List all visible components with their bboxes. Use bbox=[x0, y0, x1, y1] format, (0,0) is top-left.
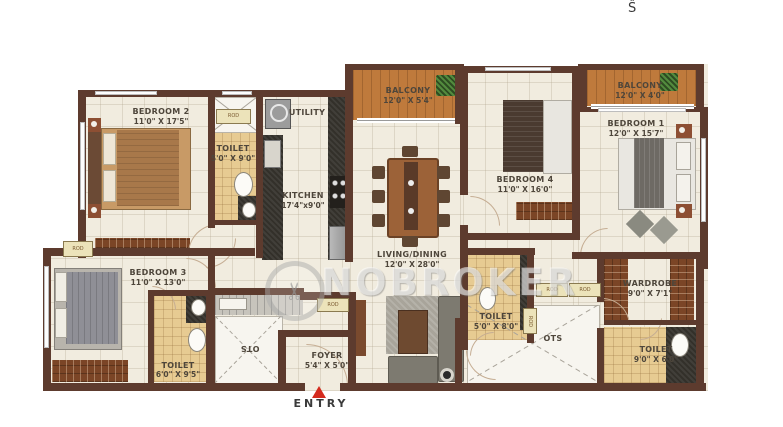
wardrobe-dims: 9'0" X 7'1" bbox=[628, 290, 672, 298]
toilet-center-label: TOILET bbox=[479, 313, 512, 321]
window bbox=[95, 91, 157, 95]
balcony-center-railing bbox=[357, 118, 455, 123]
wall bbox=[696, 64, 704, 112]
pillow bbox=[55, 272, 67, 302]
wall bbox=[460, 73, 468, 195]
bedroom3-label: BEDROOM 3 bbox=[130, 269, 187, 277]
toilet2-label: TOILET bbox=[216, 145, 249, 153]
rod-label: ROD bbox=[527, 315, 532, 326]
bed2-headboard bbox=[88, 122, 101, 214]
kitchen-sink bbox=[264, 140, 281, 168]
pillow bbox=[676, 174, 691, 202]
toilet-center-dims: 5'0" X 8'0" bbox=[474, 323, 518, 331]
bed1-blanket bbox=[634, 138, 664, 208]
bed2-blanket bbox=[117, 130, 179, 206]
wall bbox=[148, 290, 154, 385]
nightstand bbox=[676, 124, 692, 138]
wall bbox=[597, 328, 604, 388]
balcony-right-dims: 12'0" X 4'0" bbox=[615, 92, 665, 100]
chair bbox=[437, 190, 450, 203]
wall bbox=[206, 290, 212, 385]
wardrobe-label: WARDROBE bbox=[623, 280, 677, 288]
bedroom2-label: BEDROOM 2 bbox=[133, 108, 190, 116]
bed3-blanket bbox=[66, 272, 118, 344]
wall bbox=[148, 290, 212, 296]
wardrobe-strip bbox=[516, 202, 572, 220]
window bbox=[80, 122, 85, 210]
wall bbox=[348, 292, 356, 387]
coffee-table bbox=[398, 310, 428, 354]
sofa bbox=[388, 356, 438, 384]
window bbox=[222, 91, 252, 95]
chair bbox=[402, 146, 418, 157]
chair bbox=[372, 214, 385, 227]
window bbox=[485, 67, 551, 71]
rod-marker: ROD bbox=[216, 109, 251, 124]
wall bbox=[455, 318, 462, 386]
wardrobe-strip bbox=[52, 360, 128, 382]
entry-label: ENTRY bbox=[293, 397, 348, 410]
wardrobe-strip bbox=[670, 258, 694, 322]
toilet3-dims: 6'0" X 9'5" bbox=[156, 371, 200, 379]
rod-label: ROD bbox=[72, 247, 83, 252]
foyer-dims: 5'4" X 5'0" bbox=[305, 362, 349, 370]
toilet-icon bbox=[671, 333, 689, 357]
nobroker-logo-icon: ✂ bbox=[265, 261, 325, 321]
compass-north-icon: Ŝ bbox=[628, 1, 636, 16]
bedroom3-dims: 11'0" X 13'0" bbox=[131, 279, 186, 287]
foyer-label: FOYER bbox=[312, 352, 343, 360]
wall bbox=[460, 233, 580, 240]
chair bbox=[372, 190, 385, 203]
toilet-icon bbox=[234, 172, 253, 197]
bedroom4-dims: 11'0" X 16'0" bbox=[498, 186, 553, 194]
window bbox=[701, 138, 706, 222]
bedroom1-label: BEDROOM 1 bbox=[608, 120, 665, 128]
living-label: LIVING/DINING bbox=[377, 251, 447, 259]
floor-plan: ROD ROD ROD ROD ROD ROD BEDROOM 2 11'0" … bbox=[0, 0, 783, 427]
wall bbox=[578, 64, 704, 70]
chair bbox=[372, 166, 385, 179]
wall bbox=[460, 248, 535, 255]
chair bbox=[437, 166, 450, 179]
wall bbox=[256, 95, 263, 258]
toilet1-label: TOILET bbox=[639, 346, 672, 354]
pillow bbox=[55, 308, 67, 338]
wall bbox=[340, 383, 706, 391]
rod-label: ROD bbox=[579, 288, 590, 293]
toilet-icon bbox=[188, 328, 206, 352]
kitchen-dims: 17'4"x9'0" bbox=[281, 202, 324, 210]
table-decor bbox=[408, 180, 414, 186]
rod-marker: ROD bbox=[523, 308, 537, 334]
nightstand bbox=[676, 204, 692, 218]
wall bbox=[212, 220, 260, 225]
washbasin-icon bbox=[191, 299, 206, 316]
wall bbox=[345, 64, 353, 262]
washing-machine-drum bbox=[270, 104, 288, 122]
wall bbox=[43, 383, 217, 391]
balcony-right-label: BALCONY bbox=[618, 82, 663, 90]
utility-label: UTILITY bbox=[289, 109, 325, 117]
toilet1-dims: 9'0" X 6'0" bbox=[634, 356, 678, 364]
chair bbox=[402, 236, 418, 247]
plant-icon bbox=[660, 73, 678, 91]
pillow bbox=[676, 142, 691, 170]
bed4-blanket bbox=[503, 100, 543, 172]
chair bbox=[437, 214, 450, 227]
nightstand bbox=[88, 118, 101, 132]
pillow bbox=[103, 170, 116, 202]
washbasin-icon bbox=[242, 202, 256, 218]
wall bbox=[278, 330, 354, 337]
side-table bbox=[440, 368, 454, 382]
balcony-center-label: BALCONY bbox=[386, 87, 431, 95]
wall bbox=[348, 64, 463, 70]
bed4-mattress bbox=[543, 100, 572, 174]
lift-marker bbox=[219, 298, 247, 310]
rod-label: ROD bbox=[228, 114, 239, 119]
pillow bbox=[103, 133, 116, 165]
plant-icon bbox=[436, 75, 457, 96]
balcony-center-dims: 12'0" X 5'4" bbox=[383, 97, 433, 105]
wall bbox=[572, 252, 704, 259]
table-runner bbox=[404, 162, 418, 230]
window bbox=[598, 108, 686, 112]
kitchen-label: KITCHEN bbox=[282, 192, 323, 200]
toilet2-dims: 5'0" X 9'0" bbox=[211, 155, 255, 163]
ots-left-label: OTS bbox=[241, 344, 260, 352]
wall bbox=[278, 330, 286, 390]
ots-right-label: OTS bbox=[544, 335, 563, 343]
tv-console bbox=[356, 300, 366, 356]
bedroom1-dims: 12'0" X 15'7" bbox=[609, 130, 664, 138]
window bbox=[44, 266, 49, 348]
wall bbox=[604, 320, 698, 325]
toilet3-label: TOILET bbox=[161, 362, 194, 370]
scissors-icon: ✂ bbox=[281, 281, 309, 301]
wall bbox=[578, 64, 587, 112]
bedroom4-label: BEDROOM 4 bbox=[497, 176, 554, 184]
wall bbox=[215, 383, 305, 391]
nightstand bbox=[88, 204, 101, 218]
watermark-brand: NOBROKER bbox=[321, 264, 578, 301]
table-decor bbox=[408, 208, 414, 214]
bedroom2-dims: 11'0" X 17'5" bbox=[134, 118, 189, 126]
rod-marker: ROD bbox=[63, 241, 93, 257]
